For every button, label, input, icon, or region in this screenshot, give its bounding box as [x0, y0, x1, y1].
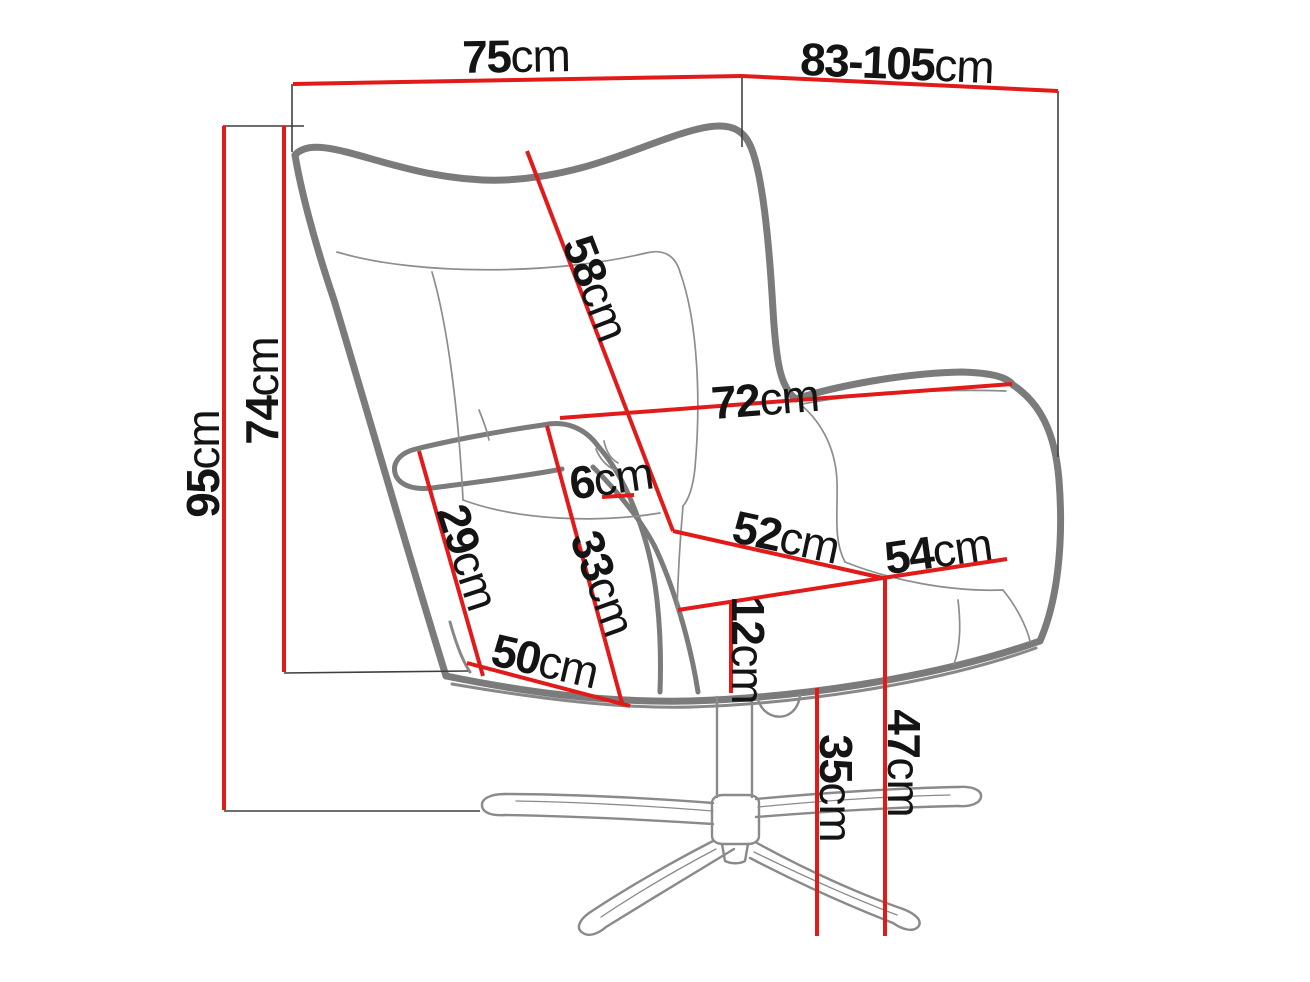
- seat-front-edge-line: [678, 578, 883, 610]
- dim-label-6: 6cm: [566, 449, 655, 506]
- dim-unit: cm: [590, 446, 656, 506]
- dim-label-12: 12cm: [725, 596, 771, 704]
- dim-unit: cm: [810, 782, 862, 841]
- dim-label-95: 95cm: [180, 410, 226, 518]
- dim-value: 54: [881, 526, 936, 584]
- chair-seams: [337, 252, 1030, 664]
- helper-74-bottom: [284, 671, 468, 673]
- dim-unit: cm: [722, 644, 774, 703]
- dim-unit: cm: [933, 39, 995, 94]
- dim-value: 74: [236, 397, 288, 445]
- dim-unit: cm: [929, 518, 995, 578]
- dim-label-35: 35cm: [813, 734, 859, 842]
- dim-unit: cm: [510, 29, 570, 82]
- dim-label-47: 47cm: [881, 709, 927, 817]
- dim-label-75: 75cm: [462, 32, 570, 80]
- dim-label-72: 72cm: [710, 372, 821, 426]
- dim-label-74: 74cm: [239, 337, 285, 445]
- dim-unit: cm: [236, 337, 288, 396]
- dim-value: 75: [462, 30, 511, 83]
- dim-unit: cm: [177, 410, 229, 469]
- dim-unit: cm: [757, 369, 820, 425]
- dim-value: 72: [709, 374, 761, 430]
- dim-value: 12: [722, 596, 774, 644]
- dimension-diagram: 75cm 83-105cm 95cm 74cm 58cm 72cm 6cm 33…: [0, 0, 1310, 982]
- dim-label-83-105: 83-105cm: [799, 36, 994, 90]
- dim-value: 83-105: [799, 33, 935, 91]
- dim-unit: cm: [878, 757, 930, 816]
- dim-value: 95: [177, 470, 229, 518]
- dim-value: 47: [878, 709, 930, 757]
- chair-outline: [295, 126, 1061, 707]
- dim-value: 35: [810, 734, 862, 782]
